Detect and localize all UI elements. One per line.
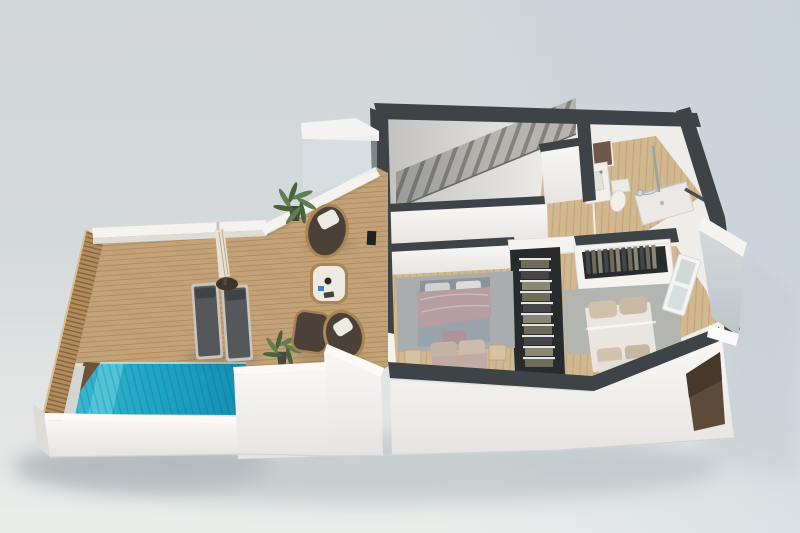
shower-drain bbox=[660, 201, 664, 205]
shower-head bbox=[637, 190, 643, 196]
bedroom-1 bbox=[396, 271, 515, 372]
notch-block-face bbox=[234, 370, 331, 459]
bed2-pillow-right bbox=[618, 296, 647, 315]
table-decor-blue bbox=[318, 286, 324, 291]
sun-lounger-2 bbox=[221, 284, 253, 362]
coffee-table bbox=[310, 263, 348, 304]
stair-half-wall bbox=[386, 196, 548, 246]
table-decor-dark bbox=[325, 278, 332, 285]
parasol-base bbox=[216, 278, 238, 291]
swimming-pool bbox=[61, 362, 246, 416]
vanity-tap bbox=[599, 170, 602, 173]
pool-front-wall-face bbox=[45, 420, 254, 457]
bed1-nightstand-left bbox=[405, 350, 421, 365]
parasol-finial bbox=[217, 222, 220, 230]
bed1-nightstand-right bbox=[489, 345, 506, 360]
bed2-pillow-left bbox=[588, 300, 617, 319]
floor-plan-stage: 3D cutaway floor plan render — upper lev… bbox=[0, 0, 800, 533]
wall-mounted-unit bbox=[367, 231, 377, 245]
sun-lounger-1 bbox=[191, 282, 223, 360]
floor-plan-render: 3D cutaway floor plan render — upper lev… bbox=[0, 0, 800, 533]
